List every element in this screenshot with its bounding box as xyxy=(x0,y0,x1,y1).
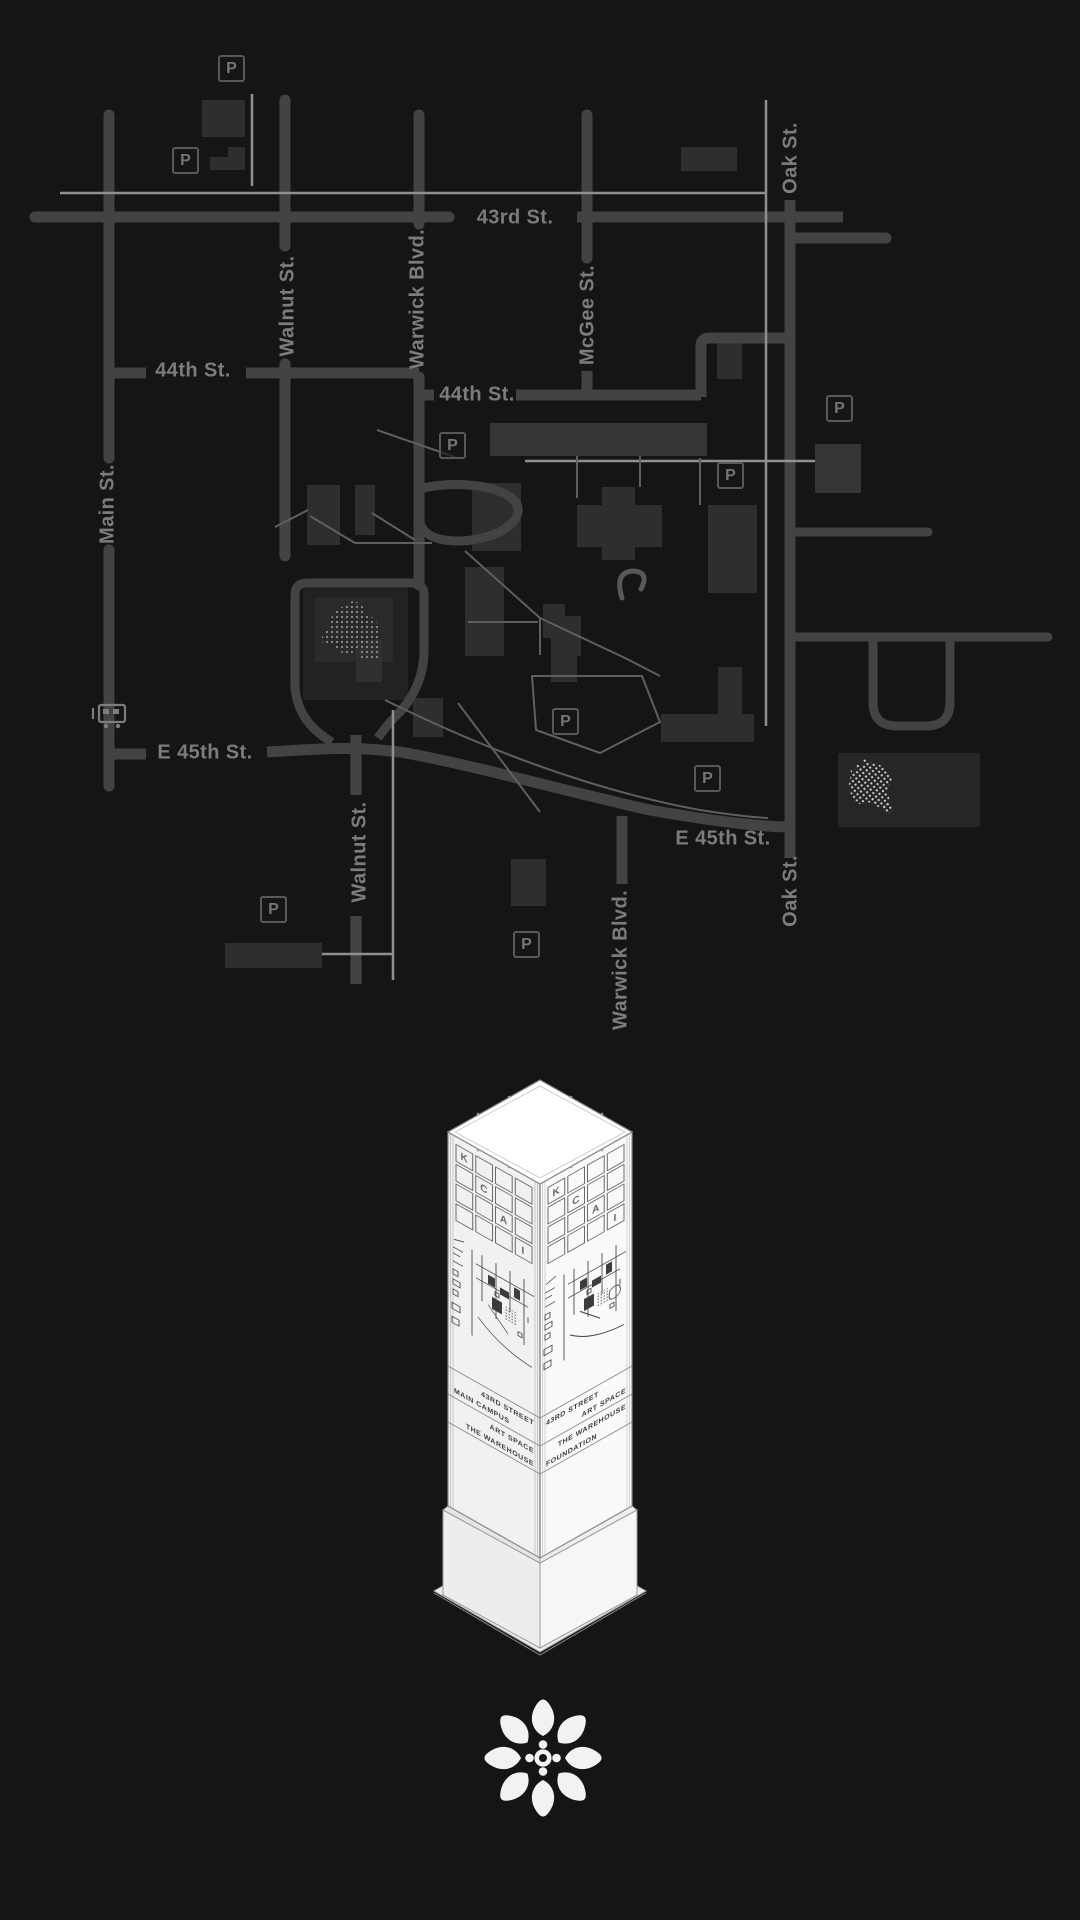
parking-letter: P xyxy=(180,153,191,169)
campus-map xyxy=(0,0,1080,1060)
street-label-e-45th-west: E 45th St. xyxy=(157,742,252,765)
parking-icon: P xyxy=(172,147,199,174)
parking-letter: P xyxy=(521,937,532,953)
flower-petals xyxy=(485,1700,602,1817)
street-label-oak-st-south: Oak St. xyxy=(780,855,803,927)
parking-icon: P xyxy=(717,462,744,489)
wayfinding-pylon: K C A I 43RD STREET MAIN CAMPUS ART SPAC… xyxy=(408,1070,672,1670)
street-label-warwick-north: Warwick Blvd. xyxy=(407,229,430,369)
shuttlecock-block xyxy=(838,751,980,827)
parking-icon: P xyxy=(694,765,721,792)
parking-icon: P xyxy=(218,55,245,82)
roads-layer xyxy=(35,100,1048,984)
street-label-mcgee-st: McGee St. xyxy=(577,265,600,365)
parking-icon: P xyxy=(826,395,853,422)
parking-letter: P xyxy=(447,438,458,454)
pylon-letter-i: I xyxy=(522,1244,525,1257)
wayfinding-design-board: 43rd St. 44th St. 44th St. E 45th St. E … xyxy=(0,0,1080,1920)
parking-icon: P xyxy=(552,708,579,735)
parking-letter: P xyxy=(834,401,845,417)
street-label-43rd-st: 43rd St. xyxy=(477,207,554,230)
parking-icon: P xyxy=(439,432,466,459)
street-label-44th-st-right: 44th St. xyxy=(439,384,514,407)
path-curl-marking xyxy=(620,571,644,598)
parking-icon: P xyxy=(260,896,287,923)
flower-dots xyxy=(525,1740,561,1776)
street-label-walnut-north: Walnut St. xyxy=(277,255,300,356)
flower-logo xyxy=(484,1699,602,1817)
flower-center-ring xyxy=(537,1752,550,1765)
pylon-right-face: K C A I 43RD STREET ART SPACE THE WAREHO… xyxy=(540,1132,632,1558)
parking-letter: P xyxy=(725,468,736,484)
street-label-oak-st-north: Oak St. xyxy=(780,122,803,194)
pylon-left-face: K C A I 43RD STREET MAIN CAMPUS ART SPAC… xyxy=(448,1132,540,1558)
pylon-letter-i: I xyxy=(614,1212,617,1225)
street-label-main-st: Main St. xyxy=(97,464,120,544)
street-label-walnut-south: Walnut St. xyxy=(349,801,372,902)
parking-icon: P xyxy=(513,931,540,958)
street-label-e-45th-east: E 45th St. xyxy=(675,828,770,851)
sculpture-plaza xyxy=(303,588,408,700)
street-label-44th-st-left: 44th St. xyxy=(155,360,230,383)
parking-letter: P xyxy=(702,771,713,787)
street-label-warwick-south: Warwick Blvd. xyxy=(610,890,633,1030)
parking-letter: P xyxy=(560,714,571,730)
parking-letter: P xyxy=(226,61,237,77)
parking-letter: P xyxy=(268,902,279,918)
